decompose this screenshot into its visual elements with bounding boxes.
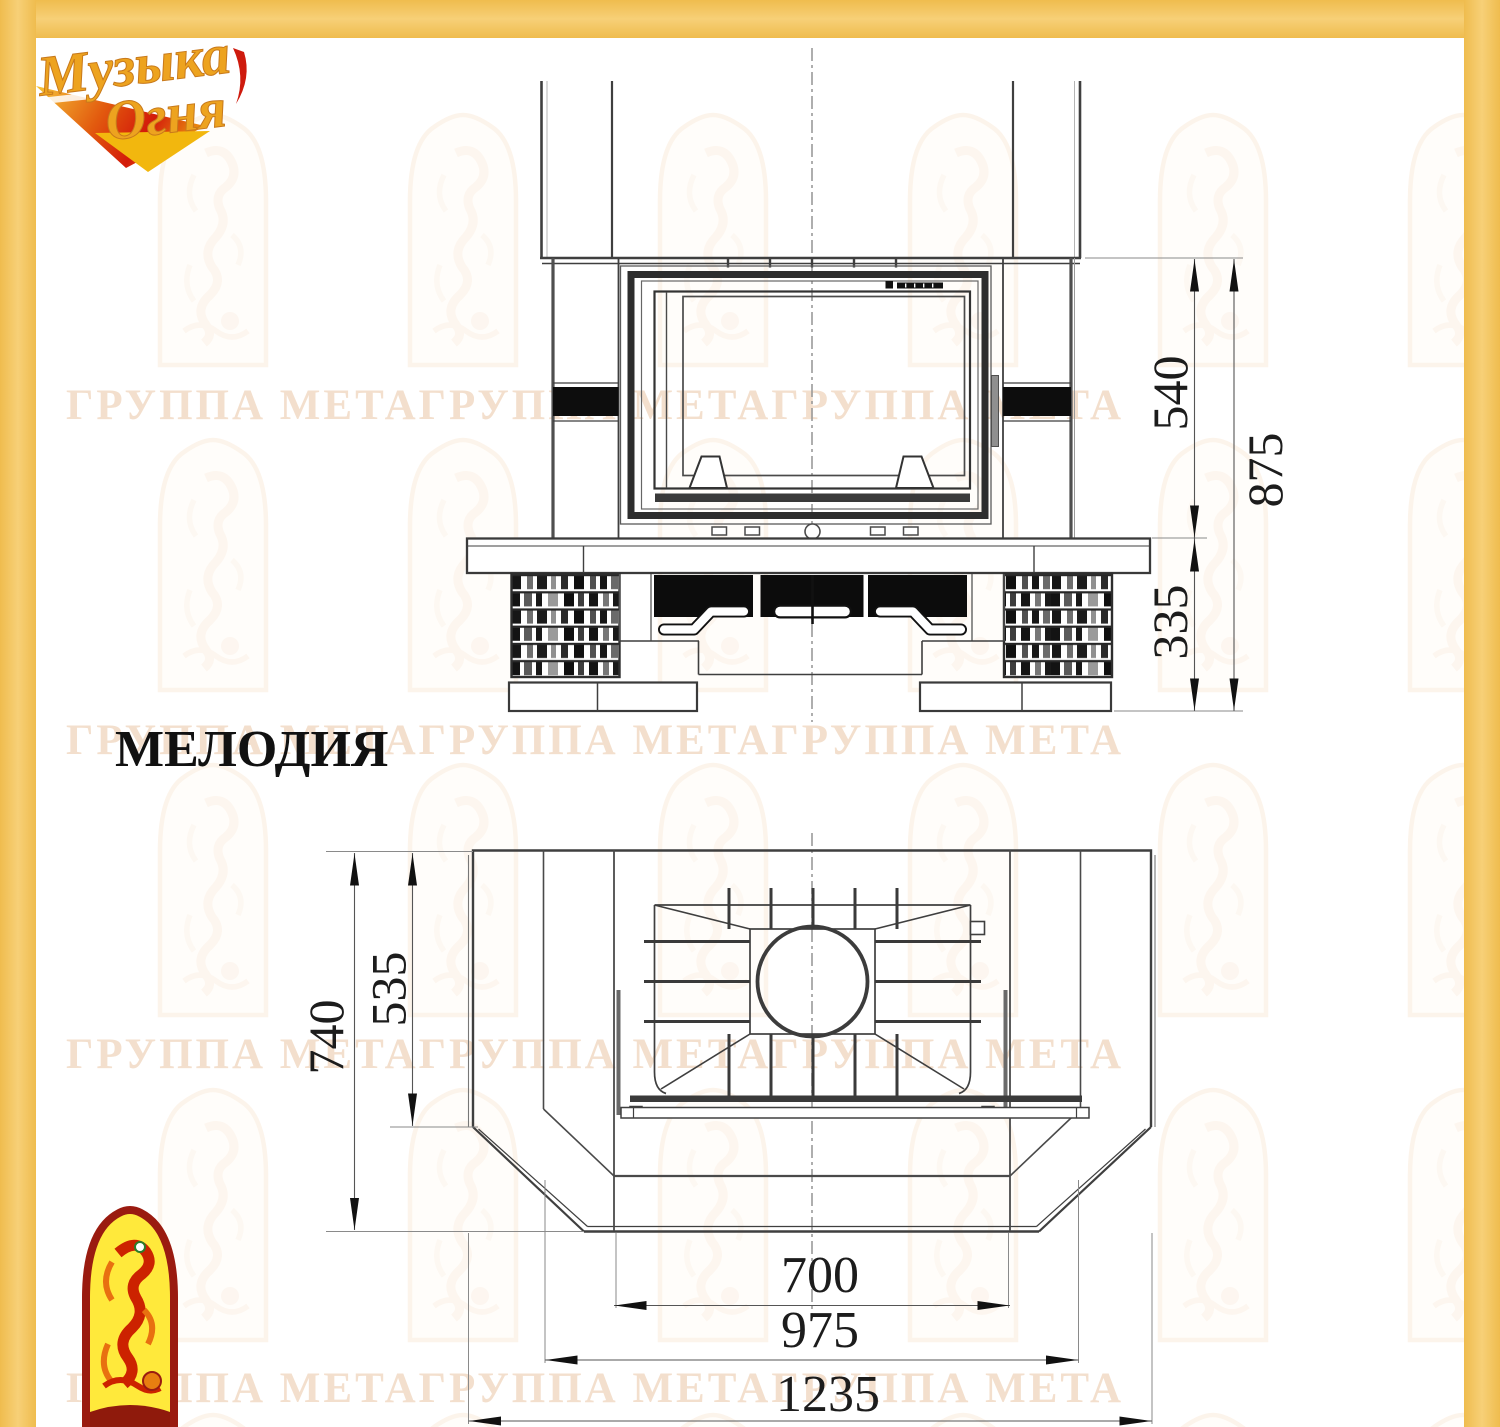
svg-text:740: 740 [298,1000,354,1075]
svg-text:535: 535 [361,952,417,1027]
svg-text:ГРУППА МЕТАГРУППА МЕТАГРУППА М: ГРУППА МЕТАГРУППА МЕТАГРУППА МЕТА [66,1365,1124,1412]
svg-text:335: 335 [1142,585,1198,660]
svg-text:975: 975 [781,1302,859,1359]
svg-text:875: 875 [1237,433,1293,508]
svg-text:1235: 1235 [776,1366,880,1423]
svg-text:540: 540 [1142,356,1198,431]
svg-text:700: 700 [781,1247,859,1304]
svg-text:МЕЛОДИЯ: МЕЛОДИЯ [115,721,388,778]
svg-text:ГРУППА МЕТАГРУППА МЕТАГРУППА М: ГРУППА МЕТАГРУППА МЕТАГРУППА МЕТА [66,1031,1124,1078]
